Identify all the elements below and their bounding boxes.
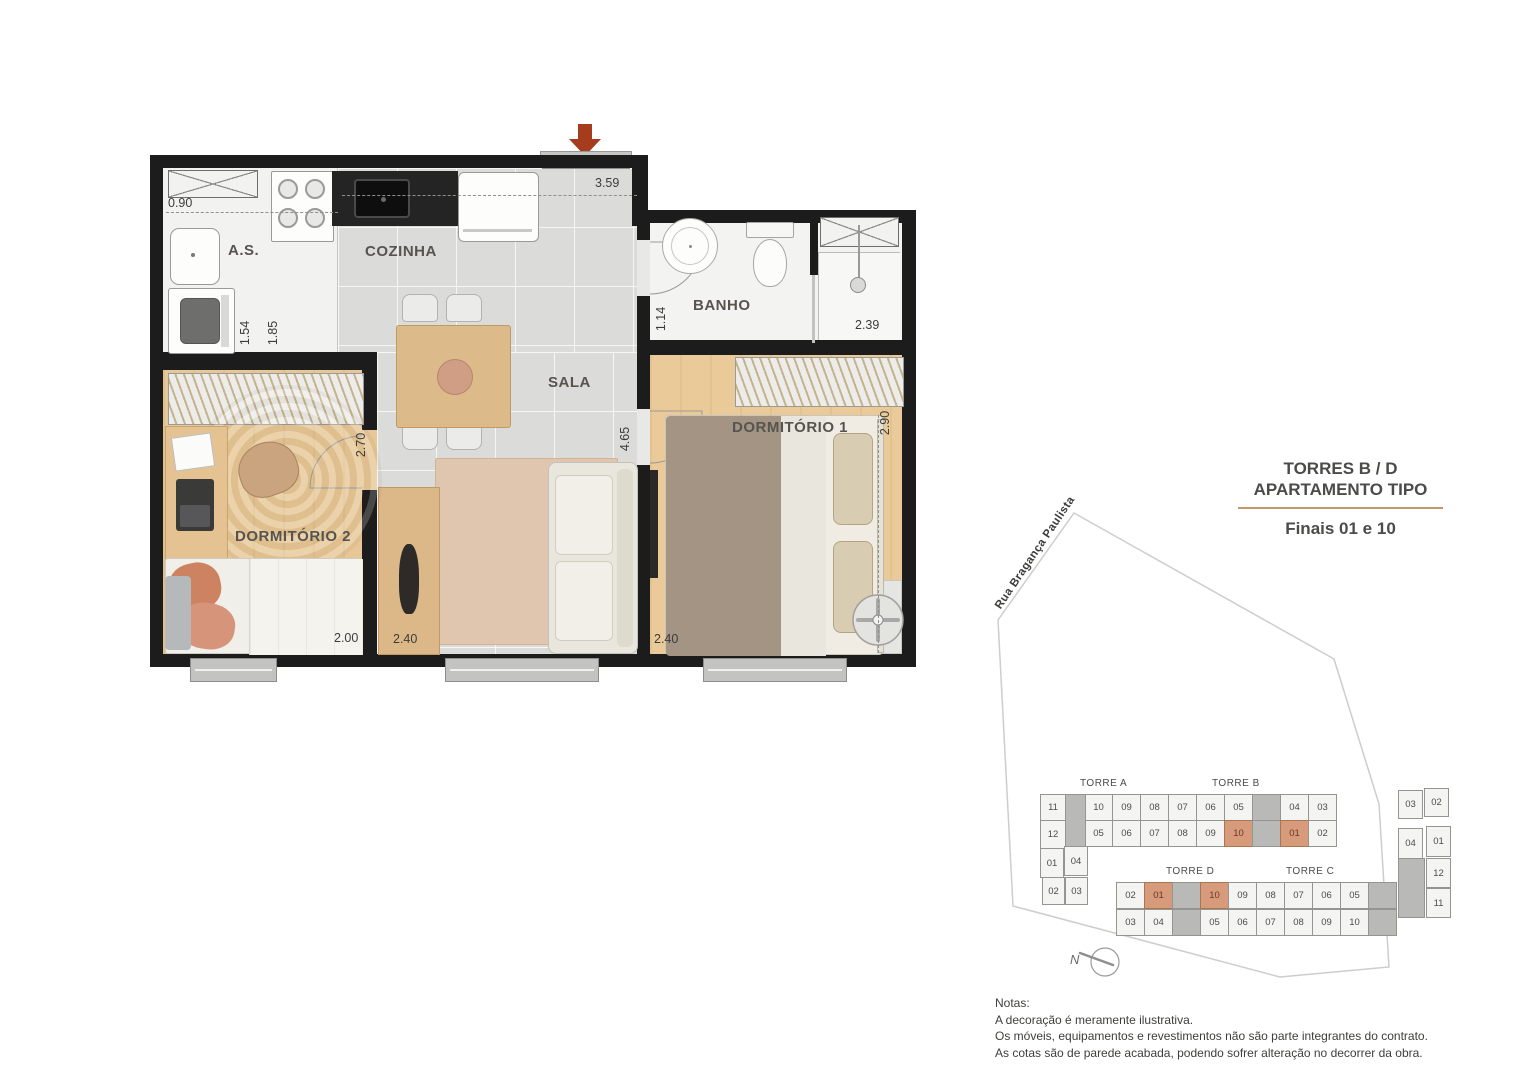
entry-arrow-icon xyxy=(578,124,592,139)
kitchen-sink xyxy=(354,179,410,218)
sofa xyxy=(548,462,638,654)
wardrobe-dorm1 xyxy=(735,357,904,407)
unit-03: 03 xyxy=(1065,877,1088,905)
torre-ab-top-row: 1009080706050403 xyxy=(1085,794,1337,821)
tower-label-a: TORRE A xyxy=(1080,778,1127,789)
unit-02: 02 xyxy=(1042,877,1065,905)
room-label-sala: SALA xyxy=(548,374,591,391)
unit-10: 10 xyxy=(1084,794,1113,821)
bed-dorm2 xyxy=(165,558,362,654)
notes-heading: Notas: xyxy=(995,995,1428,1012)
window-dorm1 xyxy=(703,658,847,682)
wall-shower-divider xyxy=(810,223,818,275)
unit-07: 07 xyxy=(1140,820,1169,847)
torre-ab-bottom-row: 0506070809100102 xyxy=(1085,820,1337,847)
unit-07: 07 xyxy=(1168,794,1197,821)
title-line1: TORRES B / D xyxy=(1238,458,1443,479)
kitchen-counter xyxy=(332,171,458,226)
title-line2: APARTAMENTO TIPO xyxy=(1238,479,1443,500)
unit-04: 04 xyxy=(1064,846,1088,876)
unit-06: 06 xyxy=(1312,882,1341,909)
unit-12: 12 xyxy=(1040,820,1066,849)
unit-01: 01 xyxy=(1426,826,1451,857)
dim-banho-width: 2.39 xyxy=(855,318,879,332)
tv-panel xyxy=(650,470,658,578)
unit-08: 08 xyxy=(1168,820,1197,847)
wall-banho-dorm1 xyxy=(637,340,916,355)
unit-10: 10 xyxy=(1340,909,1369,936)
unit-06: 06 xyxy=(1196,794,1225,821)
dining-chair xyxy=(446,294,482,322)
unit-03: 03 xyxy=(1308,794,1337,821)
room-label-as: A.S. xyxy=(228,242,259,259)
dim-sala-depth: 4.65 xyxy=(618,418,632,460)
console-table xyxy=(378,487,440,655)
notes-line: As cotas são de parede acabada, podendo … xyxy=(995,1045,1428,1062)
stair-core xyxy=(1252,794,1281,821)
page: { "title": { "line1": "TORRES B / D", "l… xyxy=(0,0,1527,1080)
bathroom-sink xyxy=(662,218,718,274)
stair-core xyxy=(1252,820,1281,847)
unit-09: 09 xyxy=(1228,882,1257,909)
dim-as-depth: 1.54 xyxy=(238,312,252,354)
unit-06: 06 xyxy=(1112,820,1141,847)
notes: Notas: A decoração é meramente ilustrati… xyxy=(995,995,1428,1061)
unit-01: 01 xyxy=(1280,820,1309,847)
north-compass-icon: N xyxy=(1058,932,1138,987)
notes-line: A decoração é meramente ilustrativa. xyxy=(995,1012,1428,1029)
unit-03: 03 xyxy=(1398,790,1423,819)
unit-11: 11 xyxy=(1040,794,1066,821)
unit-05: 05 xyxy=(1200,909,1229,936)
room-label-banho: BANHO xyxy=(693,297,751,314)
dim-line xyxy=(166,212,338,213)
dim-dorm2-depth: 2.70 xyxy=(354,424,368,466)
unit-06: 06 xyxy=(1228,909,1257,936)
tower-label-b: TORRE B xyxy=(1212,778,1260,789)
unit-11: 11 xyxy=(1426,888,1451,918)
dim-line xyxy=(342,195,637,196)
unit-01: 01 xyxy=(1144,882,1173,909)
unit-07: 07 xyxy=(1256,909,1285,936)
pillow xyxy=(833,433,873,525)
unit-07: 07 xyxy=(1284,882,1313,909)
unit-09: 09 xyxy=(1112,794,1141,821)
unit-10: 10 xyxy=(1200,882,1229,909)
dim-dorm1-width: 2.40 xyxy=(654,632,678,646)
dim-as-width: 0.90 xyxy=(168,196,192,210)
unit-02: 02 xyxy=(1116,882,1145,909)
shower-glass xyxy=(812,275,815,343)
toilet-tank xyxy=(746,222,794,238)
dining-chair xyxy=(402,294,438,322)
stove xyxy=(271,171,334,242)
unit-12: 12 xyxy=(1426,858,1451,888)
unit-09: 09 xyxy=(1312,909,1341,936)
torre-dc-bottom-row: 0304050607080910 xyxy=(1117,909,1397,936)
dim-dorm1-depth: 2.90 xyxy=(878,402,892,444)
washing-machine xyxy=(168,288,235,354)
unit-02: 02 xyxy=(1308,820,1337,847)
toilet xyxy=(753,239,787,287)
window-sala xyxy=(445,658,599,682)
dim-top-width: 3.59 xyxy=(595,176,619,190)
floor-plan: A.S. COZINHA SALA BANHO DORMITÓRIO 1 DOR… xyxy=(150,120,950,700)
unit-08: 08 xyxy=(1284,909,1313,936)
wall-top xyxy=(150,155,632,168)
wall-as-dorm2 xyxy=(150,352,377,370)
stair-core xyxy=(1172,882,1201,909)
unit-08: 08 xyxy=(1140,794,1169,821)
laundry-tub xyxy=(170,228,220,285)
wall-left xyxy=(150,155,163,667)
unit-05: 05 xyxy=(1224,794,1253,821)
dim-dorm2-width: 2.00 xyxy=(334,631,358,645)
north-label: N xyxy=(1070,952,1080,967)
tower-label-c: TORRE C xyxy=(1286,866,1334,877)
unit-04: 04 xyxy=(1398,828,1423,859)
stair-core xyxy=(1368,882,1397,909)
unit-01: 01 xyxy=(1040,848,1064,878)
unit-10: 10 xyxy=(1224,820,1253,847)
laptop xyxy=(176,479,214,531)
dim-line xyxy=(878,415,879,653)
papers xyxy=(171,432,215,471)
dim-sala-width: 2.40 xyxy=(393,632,417,646)
window-dorm2 xyxy=(190,658,277,682)
as-window-icon xyxy=(168,170,258,198)
dim-banho-depth: 1.14 xyxy=(654,298,668,340)
fridge xyxy=(458,172,539,242)
room-label-cozinha: COZINHA xyxy=(365,243,437,260)
dining-table xyxy=(396,325,511,428)
stair-core xyxy=(1172,909,1201,936)
room-label-dorm1: DORMITÓRIO 1 xyxy=(732,419,848,436)
dim-kitchen-depth: 1.85 xyxy=(266,312,280,354)
dorm1-door-opening xyxy=(637,409,650,465)
stair-core xyxy=(1368,909,1397,936)
unit-09: 09 xyxy=(1196,820,1225,847)
tower-label-d: TORRE D xyxy=(1166,866,1214,877)
notes-line: Os móveis, equipamentos e revestimentos … xyxy=(995,1028,1428,1045)
torre-dc-top-row: 0201100908070605 xyxy=(1117,882,1397,909)
banho-door-opening xyxy=(637,240,650,296)
unit-04: 04 xyxy=(1144,909,1173,936)
stair-core xyxy=(1064,794,1086,850)
room-label-dorm2: DORMITÓRIO 2 xyxy=(235,528,351,545)
unit-02: 02 xyxy=(1424,788,1449,817)
unit-05: 05 xyxy=(1084,820,1113,847)
unit-04: 04 xyxy=(1280,794,1309,821)
unit-08: 08 xyxy=(1256,882,1285,909)
throw-blanket xyxy=(165,576,191,650)
stair-core xyxy=(1398,858,1425,918)
unit-05: 05 xyxy=(1340,882,1369,909)
